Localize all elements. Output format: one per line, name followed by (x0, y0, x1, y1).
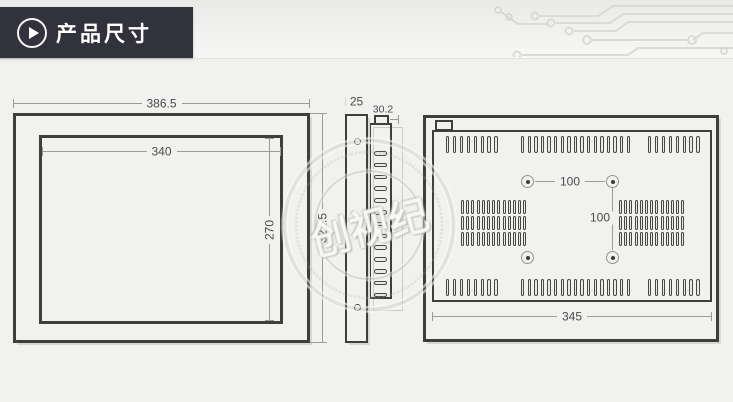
vent-slot (518, 232, 521, 246)
vent-slot (594, 136, 597, 153)
vent-slot (374, 245, 387, 250)
vent-slot (508, 232, 511, 246)
vent-slot (534, 279, 537, 296)
dimension-mount-width-label: 345 (557, 310, 587, 323)
vent-slot (666, 216, 669, 230)
vent-slot (494, 279, 497, 296)
vent-slot (487, 216, 490, 230)
vent-slot (518, 216, 521, 230)
vent-slot (627, 279, 630, 296)
vent-slot (662, 136, 665, 153)
vesa-hole-top-right (606, 175, 619, 188)
vent-slot (374, 151, 387, 156)
dimension-overall-height: 321.5 (322, 113, 323, 343)
page-title: 产品尺寸 (56, 18, 152, 48)
vent-slot (661, 232, 664, 246)
vent-slot (374, 163, 387, 168)
vent-slot (671, 232, 674, 246)
vent-slot (655, 136, 658, 153)
vent-slot (446, 136, 449, 153)
back-inner-panel (432, 130, 712, 302)
vent-slot (497, 200, 500, 214)
vent-slot (487, 232, 490, 246)
vent-slot (683, 136, 686, 153)
dimension-rear-depth-line (390, 119, 399, 120)
side-rear-top-cap (374, 115, 389, 125)
vent-slot (523, 200, 526, 214)
dimension-overall-height-label: 321.5 (316, 209, 329, 247)
vent-slot (629, 216, 632, 230)
vent-slot (503, 232, 506, 246)
vent-slot (471, 232, 474, 246)
vent-slot (619, 232, 622, 246)
dimension-screen-height-label: 270 (263, 215, 276, 243)
vent-slot (467, 279, 470, 296)
header-band: 产品尺寸 (0, 0, 733, 59)
vent-slot (650, 232, 653, 246)
vent-slot (482, 216, 485, 230)
vent-slot (620, 136, 623, 153)
vent-slot (681, 232, 684, 246)
vent-slot (541, 136, 544, 153)
vent-slot (587, 279, 590, 296)
vent-slot (661, 216, 664, 230)
vent-slot (650, 200, 653, 214)
vent-slot (676, 136, 679, 153)
vent-slot (508, 200, 511, 214)
vent-slot (547, 279, 550, 296)
vent-slot (474, 136, 477, 153)
vent-slot (655, 216, 658, 230)
vent-slot (523, 216, 526, 230)
vent-slot (676, 232, 679, 246)
vent-slot (661, 200, 664, 214)
vent-slot (554, 279, 557, 296)
circuit-pattern-decoration (478, 0, 733, 57)
vent-slot (461, 216, 464, 230)
vent-slot (669, 279, 672, 296)
vent-slot (481, 136, 484, 153)
section-title-block: 产品尺寸 (0, 7, 193, 58)
vent-slot (471, 200, 474, 214)
vent-slot (600, 136, 603, 153)
vent-slot (460, 136, 463, 153)
vent-slot (487, 279, 490, 296)
vent-slot (640, 216, 643, 230)
vent-slot (482, 200, 485, 214)
vent-slot (567, 136, 570, 153)
vent-slot (645, 232, 648, 246)
vent-slot (521, 279, 524, 296)
side-screw-hole-bottom (354, 304, 361, 311)
vent-slot (492, 232, 495, 246)
vent-slot (655, 279, 658, 296)
vent-slot (635, 216, 638, 230)
vent-slot (587, 136, 590, 153)
vent-slot (497, 216, 500, 230)
vent-slot (534, 136, 537, 153)
vent-slot (528, 279, 531, 296)
vent-slot (453, 136, 456, 153)
vent-slot (374, 234, 387, 239)
vent-slot (523, 232, 526, 246)
vent-slot (676, 216, 679, 230)
vent-slot (374, 293, 387, 298)
vent-slot (613, 136, 616, 153)
vent-slot (466, 232, 469, 246)
vent-slot (676, 279, 679, 296)
vent-slot (474, 279, 477, 296)
vent-slot (662, 279, 665, 296)
vent-slot (640, 232, 643, 246)
vent-slot (600, 279, 603, 296)
vent-slot (681, 216, 684, 230)
vent-slot (374, 198, 387, 203)
dimension-vesa-vertical-label: 100 (585, 212, 615, 225)
vent-slot (635, 232, 638, 246)
vent-slot (482, 232, 485, 246)
vent-slot (629, 232, 632, 246)
front-screen-frame (39, 135, 283, 324)
vent-slot (635, 200, 638, 214)
vent-slot (613, 279, 616, 296)
vent-slot (481, 279, 484, 296)
dimension-front-thickness-label: 25 (345, 95, 368, 108)
vent-slot (497, 232, 500, 246)
vent-slot (689, 136, 692, 153)
vesa-hole-bottom-right (606, 251, 619, 264)
dimension-rear-depth-label: 30.2 (368, 104, 398, 117)
side-screw-hole-top (354, 138, 361, 145)
vesa-hole-top-left (521, 175, 534, 188)
vent-slot (374, 269, 387, 274)
vent-slot (503, 200, 506, 214)
vent-slot (696, 136, 699, 153)
vent-slot (580, 279, 583, 296)
vent-slot (567, 279, 570, 296)
vent-slot (607, 279, 610, 296)
vent-slot (471, 216, 474, 230)
vent-slot (666, 200, 669, 214)
vent-slot (648, 279, 651, 296)
dimension-screen-height: 270 (269, 138, 270, 321)
vent-slot (671, 216, 674, 230)
vent-slot (477, 232, 480, 246)
vent-slot (521, 136, 524, 153)
vent-slot (508, 216, 511, 230)
vent-slot (541, 279, 544, 296)
back-top-latch-block (435, 120, 453, 131)
vent-slot (624, 232, 627, 246)
vent-slot (619, 216, 622, 230)
vent-slot (513, 216, 516, 230)
vent-slot (683, 279, 686, 296)
dimension-screen-width-label: 340 (146, 145, 176, 158)
vent-slot (477, 200, 480, 214)
dimension-vesa-horizontal-label: 100 (555, 175, 585, 188)
vent-slot (648, 136, 651, 153)
dimension-vesa-horizontal: 100 (535, 181, 605, 182)
vent-slot (681, 200, 684, 214)
vent-slot (645, 200, 648, 214)
vent-slot (492, 216, 495, 230)
vent-slot (492, 200, 495, 214)
vent-slot (624, 200, 627, 214)
vent-slot (518, 200, 521, 214)
vent-slot (629, 200, 632, 214)
dimension-overall-width: 386.5 (13, 103, 310, 104)
vent-slot (446, 279, 449, 296)
product-dimensions-page: 产品尺寸 386.5 340 270 321.5 (0, 0, 733, 402)
vent-slot (561, 279, 564, 296)
vent-slot (666, 232, 669, 246)
dimension-overall-width-label: 386.5 (141, 97, 181, 110)
vent-slot (554, 136, 557, 153)
vent-slot (374, 186, 387, 191)
vent-slot (574, 279, 577, 296)
vent-slot (513, 200, 516, 214)
vent-slot (467, 136, 470, 153)
vent-slot (466, 216, 469, 230)
vent-slot (374, 175, 387, 180)
vent-slot (461, 232, 464, 246)
vent-slot (676, 200, 679, 214)
vent-slot (374, 210, 387, 215)
vent-slot (640, 200, 643, 214)
vent-slot (689, 279, 692, 296)
vent-slot (513, 232, 516, 246)
vent-slot (650, 216, 653, 230)
vesa-hole-bottom-left (521, 251, 534, 264)
vent-slot (487, 200, 490, 214)
vent-slot (547, 136, 550, 153)
vent-slot (466, 200, 469, 214)
vent-slot (619, 200, 622, 214)
dimension-screen-width: 340 (42, 151, 281, 152)
vent-slot (671, 200, 674, 214)
vent-slot (574, 136, 577, 153)
vent-slot (487, 136, 490, 153)
dimension-front-thickness: 25 (345, 101, 368, 102)
dimension-mount-width: 345 (432, 316, 712, 317)
vent-slot (620, 279, 623, 296)
play-arrow-circle-icon (17, 18, 47, 48)
vent-slot (453, 279, 456, 296)
arrow-right-glyph (29, 27, 39, 39)
vent-slot (528, 136, 531, 153)
vent-slot (477, 216, 480, 230)
vent-slot (669, 136, 672, 153)
vent-slot (580, 136, 583, 153)
vent-slot (655, 200, 658, 214)
vent-slot (624, 216, 627, 230)
vent-slot (460, 279, 463, 296)
vent-slot (374, 222, 387, 227)
vent-slot (627, 136, 630, 153)
vent-slot (696, 279, 699, 296)
vent-slot (607, 136, 610, 153)
vent-slot (645, 216, 648, 230)
vent-slot (655, 232, 658, 246)
vent-slot (374, 281, 387, 286)
vent-slot (494, 136, 497, 153)
vent-slot (374, 257, 387, 262)
vent-slot (561, 136, 564, 153)
vent-slot (594, 279, 597, 296)
vent-slot (503, 216, 506, 230)
vent-slot (461, 200, 464, 214)
